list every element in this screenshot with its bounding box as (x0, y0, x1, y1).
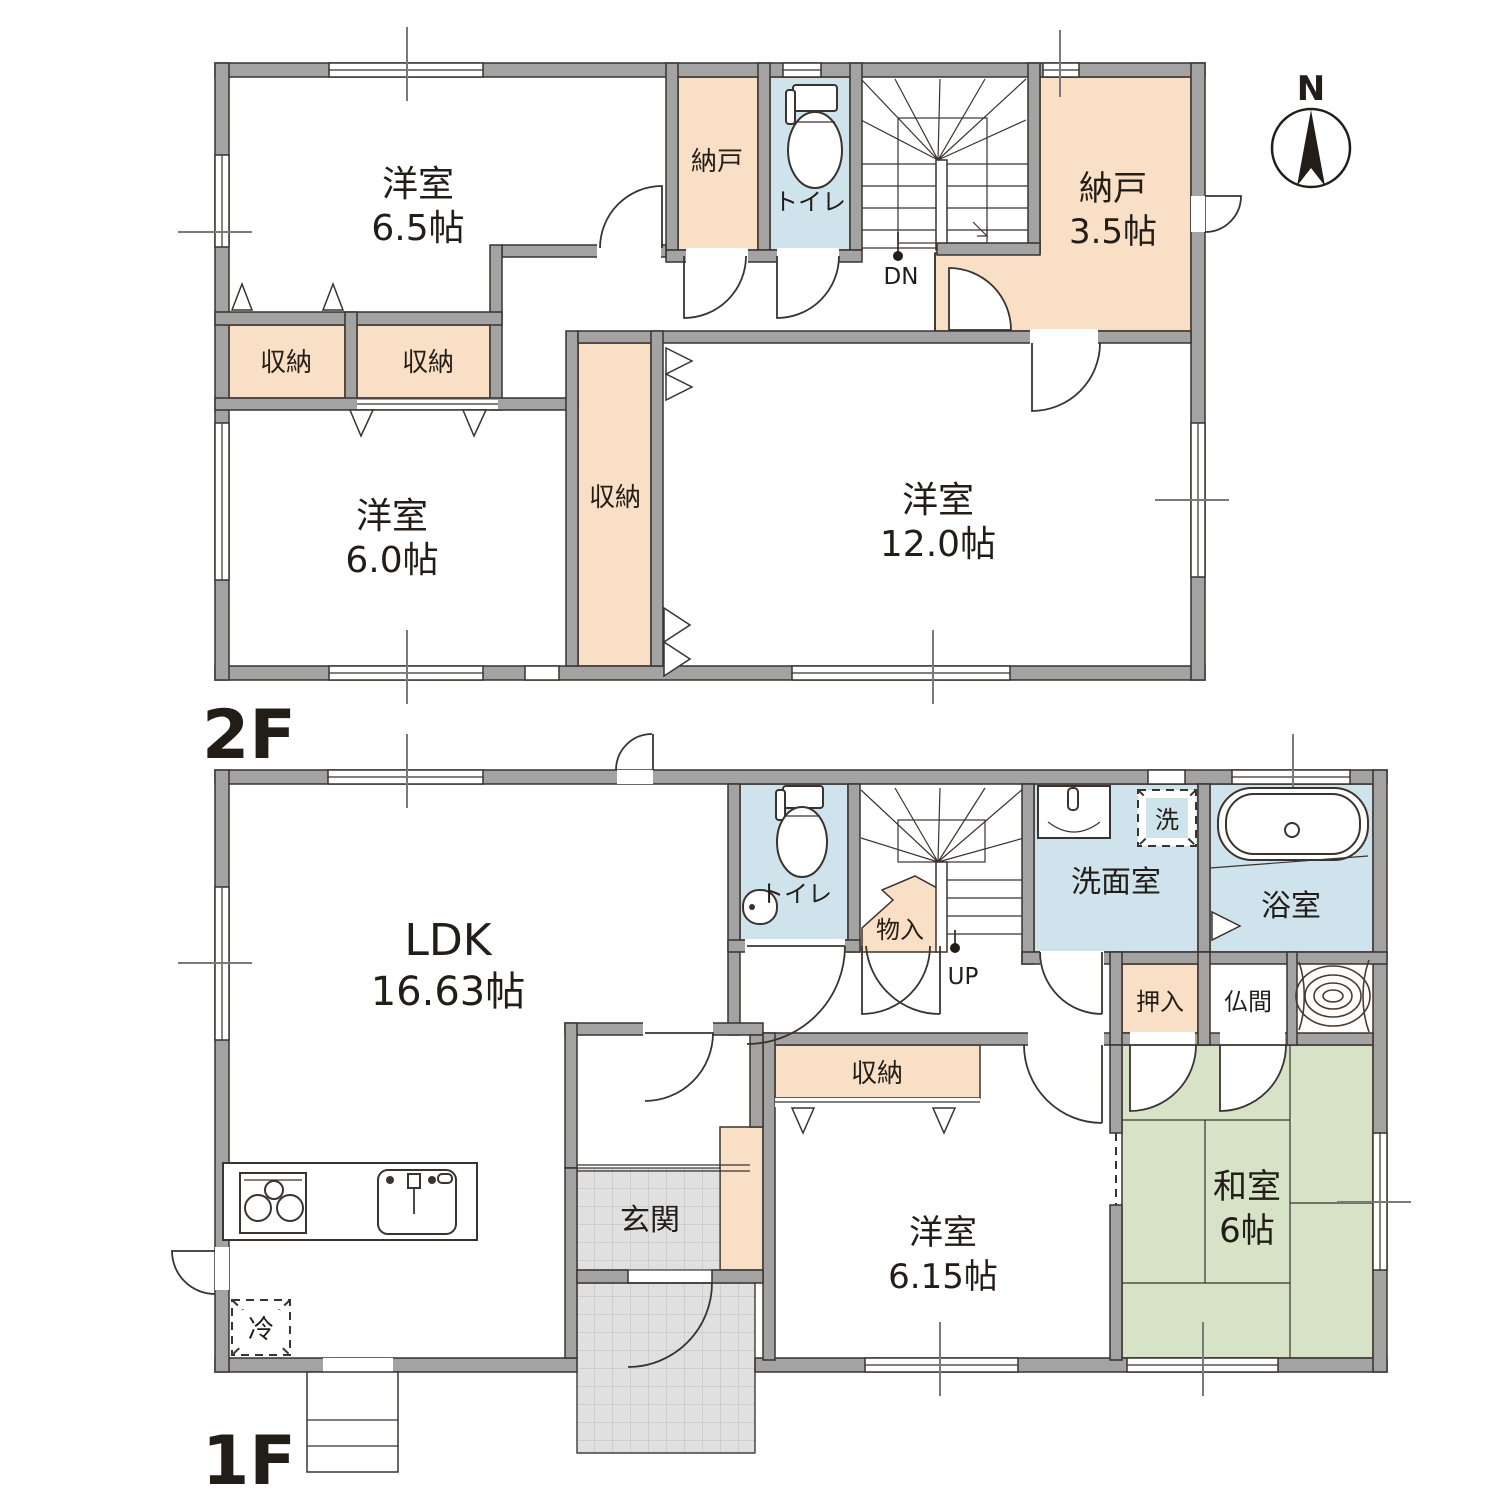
floor-1f: LDK 16.63帖 トイレ 物入 UP 洗面室 洗 浴室 押入 仏間 和室 6… (172, 734, 1411, 1500)
porch-tile (577, 1283, 755, 1453)
label-genkan: 玄関 (620, 1203, 680, 1238)
label-yoshitsu-615-size: 6.15帖 (888, 1257, 998, 1297)
entrance-steps (307, 1372, 398, 1472)
label-nando-35-name: 納戸 (1079, 169, 1147, 209)
label-yoshitsu-60-name: 洋室 (356, 496, 428, 537)
stair-rail-1f (936, 862, 947, 952)
floor-2f-label: 2F (202, 696, 296, 775)
label-nando-35-size: 3.5帖 (1069, 212, 1157, 252)
label-ldk-name: LDK (404, 915, 492, 966)
label-washer: 洗 (1155, 806, 1179, 834)
label-ldk-size: 16.63帖 (371, 969, 526, 1015)
label-yoshitsu-60-size: 6.0帖 (345, 540, 438, 581)
label-shuno-tall: 収納 (589, 483, 641, 513)
label-yoshitsu-120-name: 洋室 (902, 480, 974, 521)
label-butsuma: 仏間 (1224, 988, 1272, 1016)
compass-icon: N (1272, 69, 1350, 187)
label-yoshitsu-615-name: 洋室 (909, 1213, 977, 1253)
label-yoshitsu-65-name: 洋室 (382, 164, 454, 205)
label-toilet-1f: トイレ (760, 880, 832, 908)
label-washitsu-size: 6帖 (1219, 1211, 1275, 1251)
label-fridge: 冷 (248, 1315, 274, 1345)
label-senmen: 洗面室 (1071, 865, 1161, 900)
floor-plan-svg: 洋室 6.5帖 納戸 トイレ DN 納戸 3.5帖 収納 収納 洋室 6.0帖 … (0, 0, 1500, 1500)
floor-1f-label: 1F (202, 1422, 296, 1500)
label-oshiire: 押入 (1136, 988, 1184, 1016)
floor-2f: 洋室 6.5帖 納戸 トイレ DN 納戸 3.5帖 収納 収納 洋室 6.0帖 … (178, 27, 1241, 775)
label-monoire: 物入 (876, 916, 924, 944)
label-shuno-1f: 収納 (851, 1059, 903, 1089)
floor-plan-page: 洋室 6.5帖 納戸 トイレ DN 納戸 3.5帖 収納 収納 洋室 6.0帖 … (0, 0, 1500, 1500)
stair-up-dot (950, 943, 960, 953)
label-bath: 浴室 (1261, 889, 1321, 924)
label-nando-small: 納戸 (691, 147, 743, 177)
label-yoshitsu-120-size: 12.0帖 (880, 524, 996, 565)
stair-rail-2f (936, 160, 947, 250)
label-washitsu-name: 和室 (1213, 1167, 1281, 1207)
genkan-cabinet (720, 1127, 763, 1270)
toilet-icon-2f (786, 85, 842, 188)
label-yoshitsu-65-size: 6.5帖 (371, 208, 464, 249)
label-stairs-dn: DN (884, 264, 919, 290)
label-shuno-mid: 収納 (402, 348, 454, 378)
senmen-sink-icon (1038, 786, 1110, 838)
label-stairs-up: UP (948, 964, 979, 990)
label-toilet-2f: トイレ (774, 188, 846, 216)
kitchen-counter (223, 1163, 477, 1240)
label-shuno-left: 収納 (260, 348, 312, 378)
stair-dn-dot (893, 251, 903, 261)
compass-north-label: N (1297, 69, 1325, 109)
